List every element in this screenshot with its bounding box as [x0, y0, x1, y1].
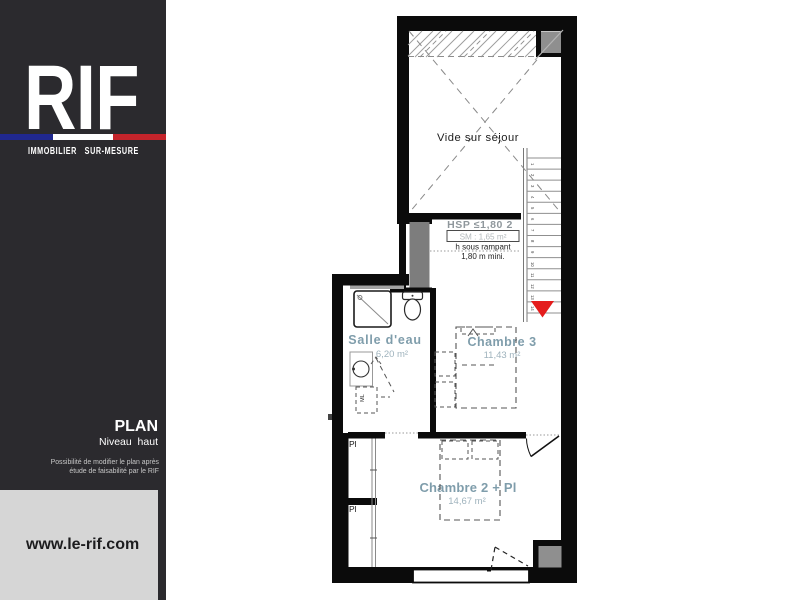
svg-text:5: 5 — [530, 207, 535, 210]
svg-text:SM : 1,65 m²: SM : 1,65 m² — [460, 233, 507, 242]
svg-text:9: 9 — [530, 251, 535, 254]
svg-text:12: 12 — [530, 284, 535, 289]
svg-text:1: 1 — [530, 163, 535, 166]
svg-text:Salle d'eau: Salle d'eau — [348, 333, 422, 347]
svg-text:Pl: Pl — [349, 439, 357, 449]
svg-text:7: 7 — [530, 229, 535, 232]
svg-text:14: 14 — [530, 306, 535, 311]
svg-text:Chambre 3: Chambre 3 — [467, 335, 536, 349]
svg-text:8: 8 — [530, 240, 535, 243]
svg-text:11: 11 — [530, 273, 535, 278]
svg-text:ML: ML — [360, 394, 366, 402]
svg-text:HSP ≤1,80 2: HSP ≤1,80 2 — [447, 219, 513, 231]
svg-text:Chambre 2 + Pl: Chambre 2 + Pl — [419, 480, 516, 495]
svg-text:3: 3 — [530, 185, 535, 188]
svg-text:4: 4 — [530, 196, 535, 199]
svg-text:1,80 m mini.: 1,80 m mini. — [461, 252, 505, 261]
svg-text:11,43 m²: 11,43 m² — [484, 350, 521, 361]
svg-text:6: 6 — [530, 218, 535, 221]
svg-text:h sous rampant: h sous rampant — [455, 243, 511, 252]
svg-text:13: 13 — [530, 295, 535, 300]
svg-text:Pl: Pl — [349, 504, 357, 514]
svg-text:14,67 m²: 14,67 m² — [448, 496, 486, 507]
svg-text:10: 10 — [530, 262, 535, 267]
svg-text:6,20 m²: 6,20 m² — [376, 349, 408, 360]
svg-text:Vide sur séjour: Vide sur séjour — [437, 132, 519, 144]
